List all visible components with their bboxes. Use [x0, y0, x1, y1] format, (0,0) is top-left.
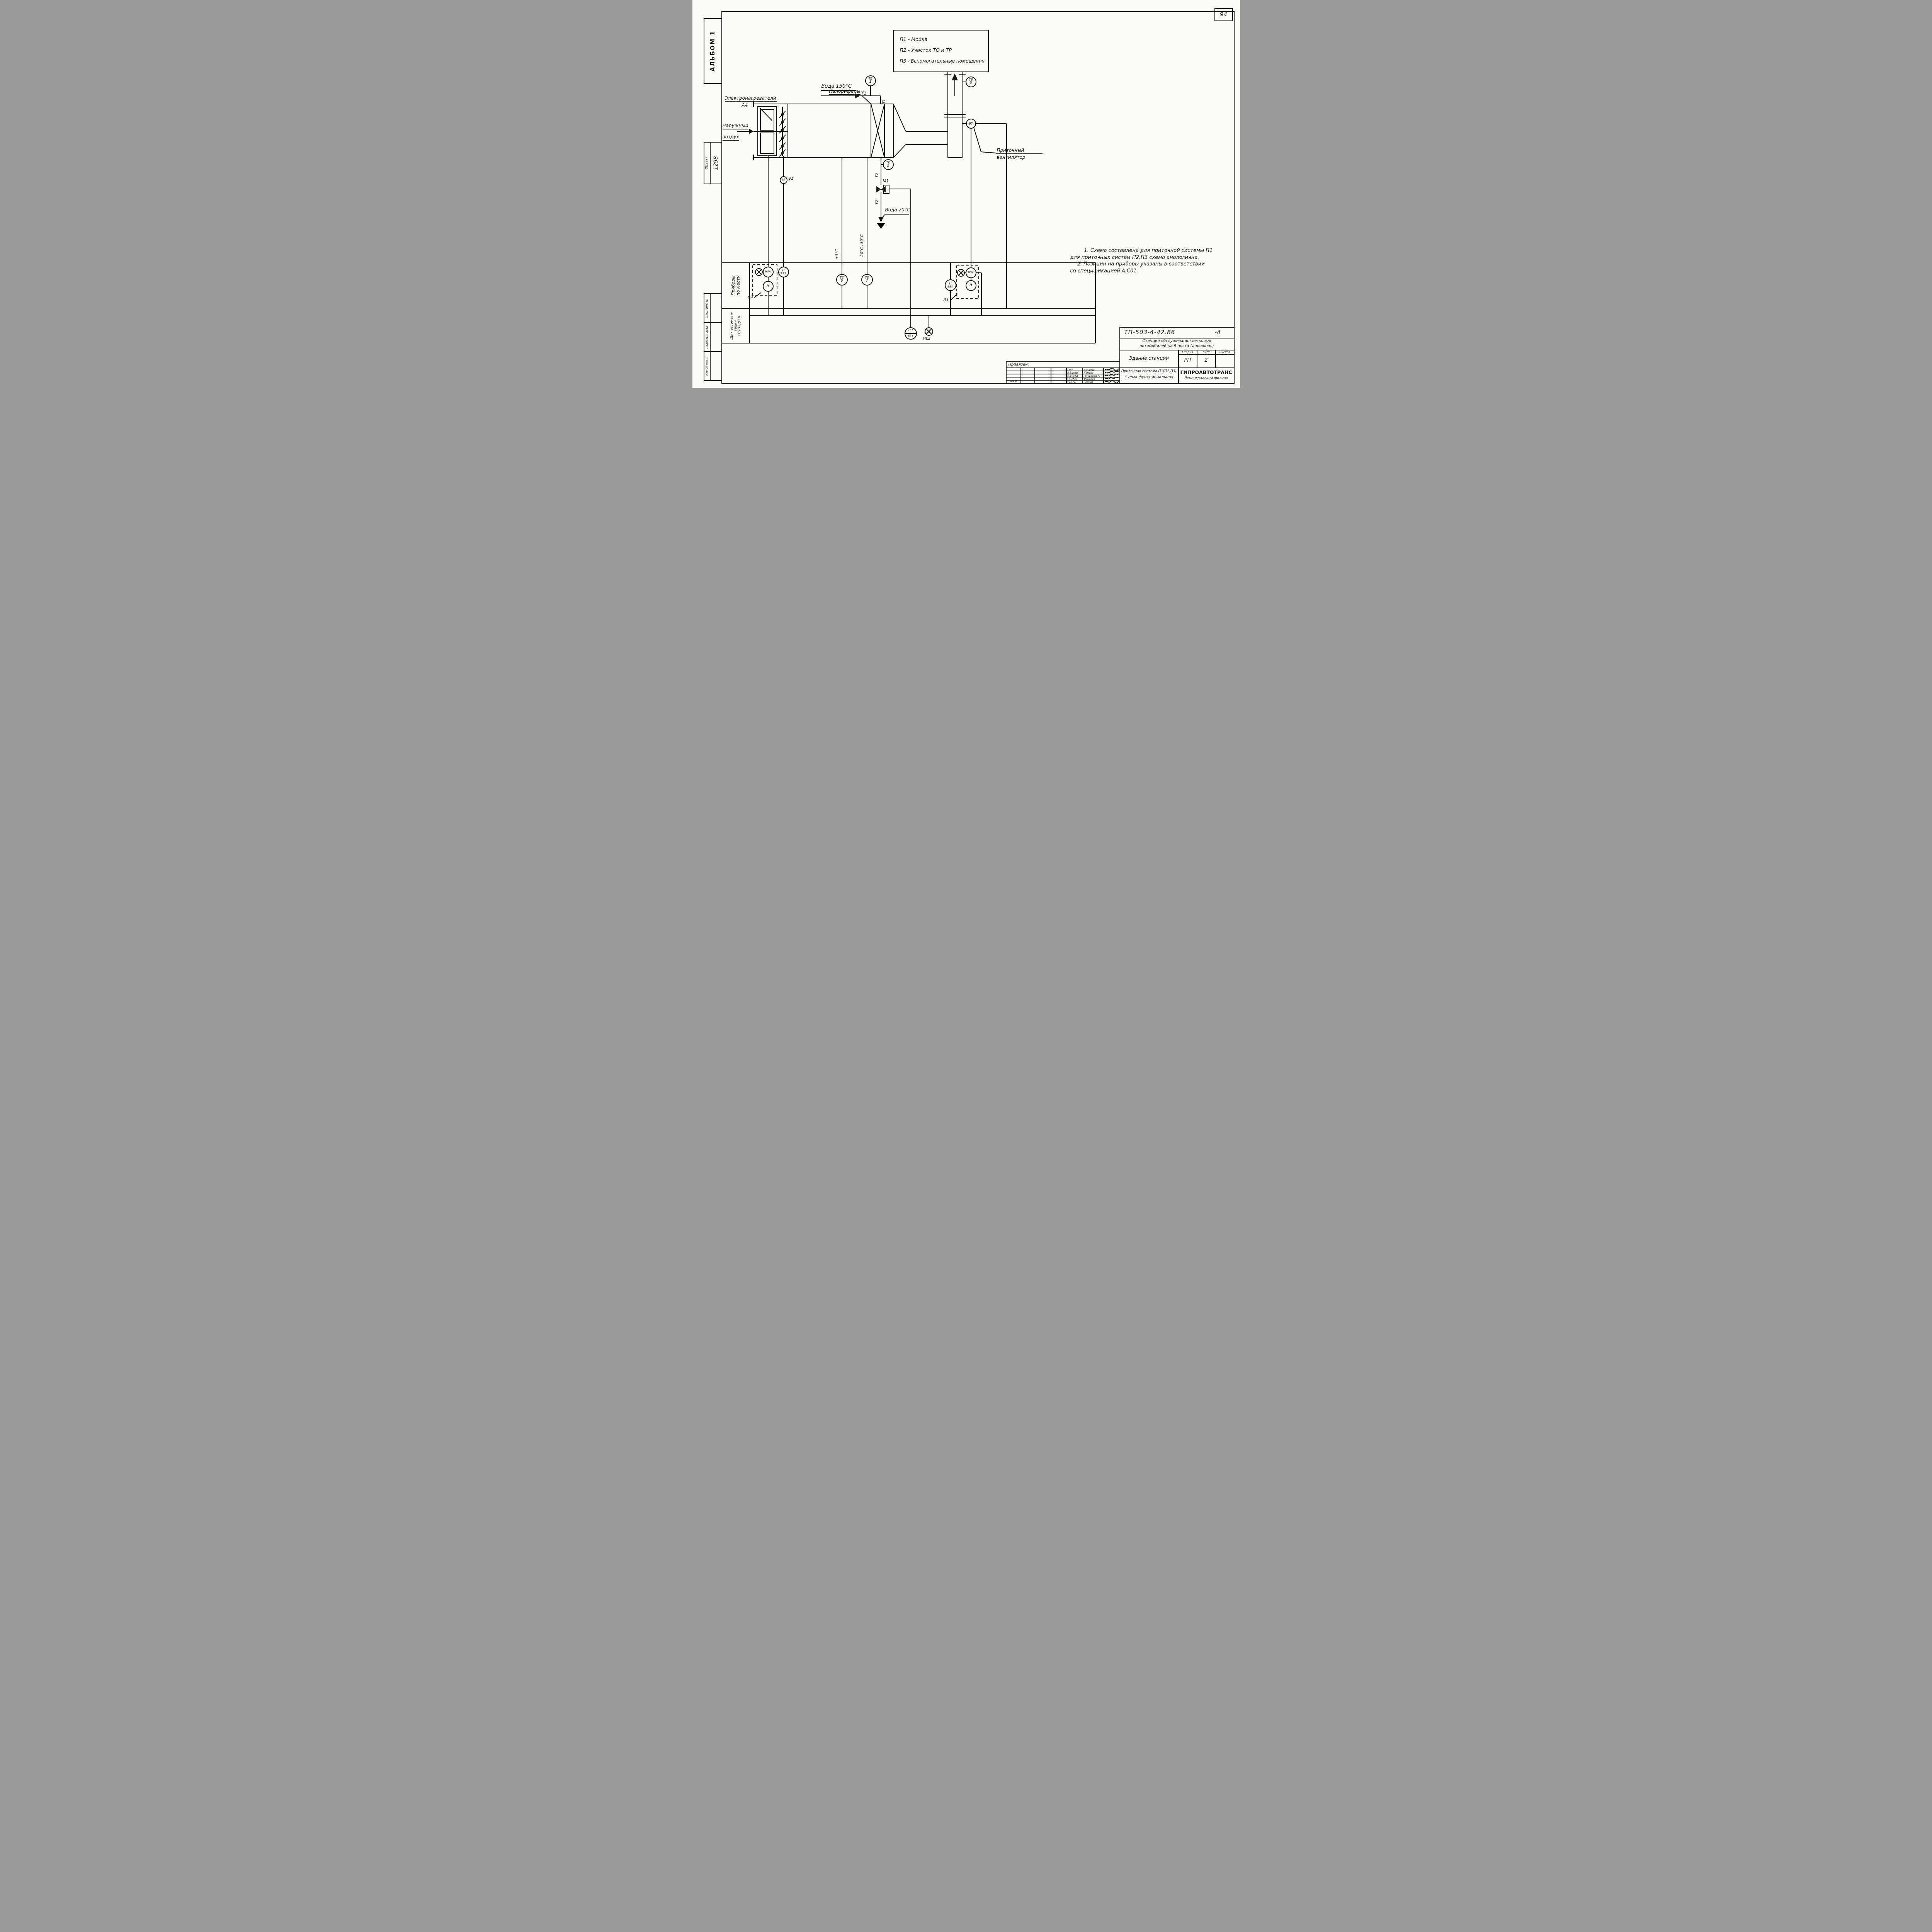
label-box-a3: А3 — [748, 294, 754, 299]
titleblock-sheets-label: Листов — [1216, 350, 1234, 354]
label-outdoor-air-2: воздух — [723, 134, 739, 141]
button-h-sb2-label: НSБ2 — [779, 267, 789, 277]
switch-hsa-left-label: НSА — [763, 267, 773, 277]
drawing-sheet: 94 АЛЬБОМ 1 Объект 1298 Взам. инв. № Под… — [692, 0, 1240, 388]
titleblock-sheet-label: Лист — [1197, 350, 1216, 354]
device-h-right-label: Н — [966, 281, 976, 291]
label-valve-tag: М1 — [883, 179, 889, 184]
signer-name: Грищенович — [1084, 374, 1100, 378]
outdoor-air-arrow — [749, 129, 753, 134]
label-box-a1: А1 — [944, 297, 949, 302]
damper-motor-label: М — [780, 177, 787, 184]
legend-line-p3: П3 - Вспомогательные помещения — [900, 58, 985, 64]
label-temp-range: 20°С÷30°С — [859, 227, 865, 264]
signer-name: Комова — [1084, 381, 1094, 384]
titleblock-drawing-1: Приточная система П1(П2,П3) — [1120, 369, 1179, 373]
label-outdoor-air-1: Наружный — [723, 123, 748, 129]
sidebar-object-number: 1298 — [710, 142, 722, 184]
sidebar-cell-1: Подпись и дата — [704, 323, 710, 352]
label-t1: Т1 — [861, 91, 867, 96]
titleblock-project-2: автомобилей на 9 поста (дорожная) — [1120, 344, 1234, 348]
titleblock-doc-suffix: -А — [1215, 329, 1221, 336]
signer-role: Гл.спец — [1068, 378, 1078, 381]
titleblock-org: ГИПРОАВТОТРАНС — [1179, 369, 1234, 375]
button-h-sb1-label: НSБ1 — [945, 280, 956, 291]
titleblock-org-branch: Ленинградский филиал — [1179, 376, 1234, 380]
note-line: со спецификацией А.С01. — [1070, 268, 1233, 275]
sidebar-cell-2: Инв. № подл. — [704, 352, 710, 381]
signature — [1105, 368, 1119, 371]
signer-role: Рук.гр. — [1068, 381, 1077, 384]
label-t2-lower: Т2 — [874, 197, 880, 207]
sensor-te2-label: ТЕ2 — [883, 160, 893, 170]
drain-symbol — [877, 223, 885, 229]
label-calorifiers: Калориферы — [829, 88, 861, 95]
signer-name: Чекалов — [1084, 368, 1095, 371]
signer-role: Нач.отд — [1068, 374, 1078, 378]
titleblock-stage: РП — [1179, 357, 1197, 363]
panel-row-cabinet-label: Щит автомати- зации П1(П2)(П3) — [723, 309, 749, 342]
label-water-return: Вода 70°С — [885, 207, 910, 213]
sensor-te5-label: ТЕ5 — [966, 77, 976, 87]
signer-name: Фонарев — [1084, 378, 1095, 381]
titleblock-sheet: 2 — [1197, 357, 1216, 363]
titleblock-drawing-2: Схема функциональная — [1120, 375, 1179, 379]
signer-name: Комова — [1084, 371, 1094, 374]
legend-line-p1: П1 - Мойка — [900, 36, 928, 42]
sidebar-album: АЛЬБОМ 1 — [704, 19, 722, 83]
label-t1-vertical: Т1 — [881, 97, 887, 106]
sensor-te6-label: ТЕ6 — [837, 274, 847, 285]
titleblock-doc-number: ТП-503-4-42.86 — [1124, 329, 1175, 336]
label-electric-heaters: Электронагреватели — [725, 95, 776, 101]
titleblock-attached: Привязан: — [1009, 362, 1029, 367]
switch-hz-sa1-label: НЗSА1 — [905, 328, 917, 339]
label-water-supply: Вода 150°С — [821, 83, 852, 89]
sidebar-cell-0: Взам. инв. № — [704, 294, 710, 323]
label-temp-tolerance: ±3°С — [834, 243, 840, 265]
notes-block: 1. Схема составлена для приточной систем… — [1070, 247, 1233, 274]
titleblock-inv-label: Инв.№ — [1006, 380, 1021, 383]
label-t2-upper: Т2 — [874, 170, 880, 180]
titleblock-project-1: Станция обслуживания легковых — [1120, 339, 1234, 343]
signer-role: ГИП — [1068, 368, 1073, 371]
control-valve — [876, 186, 881, 192]
label-damper-actuator: УА — [789, 177, 794, 182]
fan-label-leader — [974, 128, 996, 153]
note-line: 1. Схема составлена для приточной систем… — [1070, 247, 1233, 254]
switch-hsa-right-label: НSА — [966, 268, 976, 278]
panel-row-local-label: Приборы по месту — [723, 264, 749, 308]
label-fan-1: Приточный — [997, 148, 1024, 153]
sidebar-object-label: Объект — [704, 142, 710, 184]
sensor-te1-label: ТЕ1 — [866, 76, 876, 86]
titleblock-stage-label: Стадия — [1179, 350, 1197, 354]
signature — [1105, 381, 1119, 383]
fan-motor-label: М — [966, 119, 976, 128]
titleblock-object-name: Здание станции — [1120, 355, 1179, 361]
legend-line-p2: П2 - Участок ТО и ТР — [900, 47, 952, 53]
sensor-te7-label: ТЕ7 — [862, 274, 872, 285]
label-electric-heaters-tag: А4 — [742, 102, 748, 108]
label-lamp-hl2: НL2 — [923, 337, 930, 341]
signer-role: Н.контр — [1068, 371, 1078, 374]
label-fan-2: вентилятор — [997, 155, 1026, 160]
page-number: 94 — [1215, 11, 1233, 18]
device-h-left-label: Н — [763, 281, 773, 291]
note-line: 2. Позиции на приборы указаны в соответс… — [1070, 261, 1233, 268]
note-line: для приточных систем П2,П3 схема аналоги… — [1070, 254, 1233, 261]
